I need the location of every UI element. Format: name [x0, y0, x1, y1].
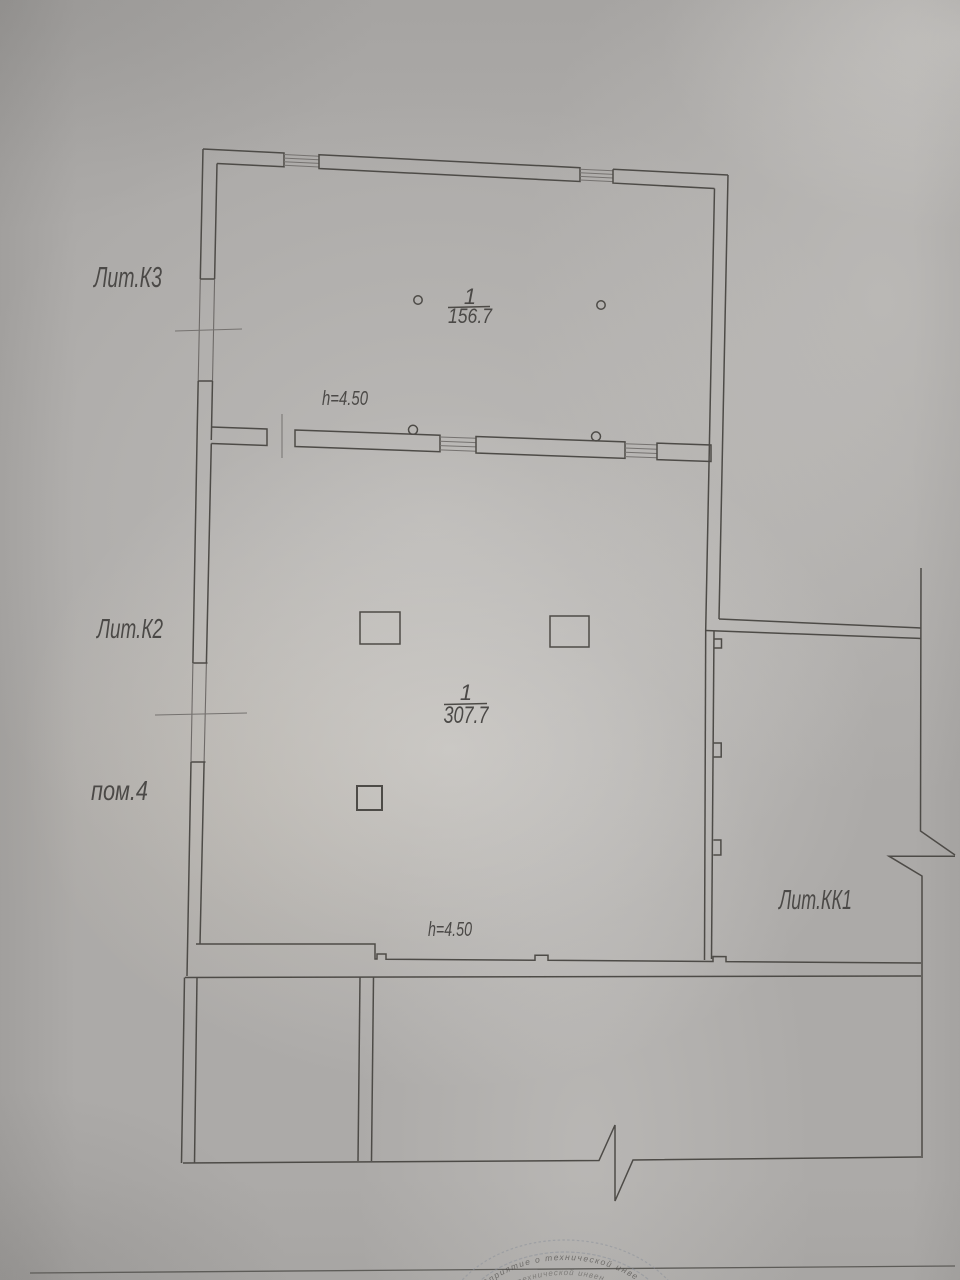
- svg-text:h=4.50: h=4.50: [428, 919, 472, 941]
- svg-text:Лит.К3: Лит.К3: [93, 262, 162, 294]
- svg-text:пом.4: пом.4: [91, 775, 148, 806]
- svg-text:h=4.50: h=4.50: [322, 388, 368, 410]
- svg-text:156.7: 156.7: [448, 305, 493, 328]
- svg-text:Лит.КК1: Лит.КК1: [778, 884, 852, 915]
- svg-text:307.7: 307.7: [444, 702, 490, 729]
- svg-text:Лит.К2: Лит.К2: [96, 613, 164, 644]
